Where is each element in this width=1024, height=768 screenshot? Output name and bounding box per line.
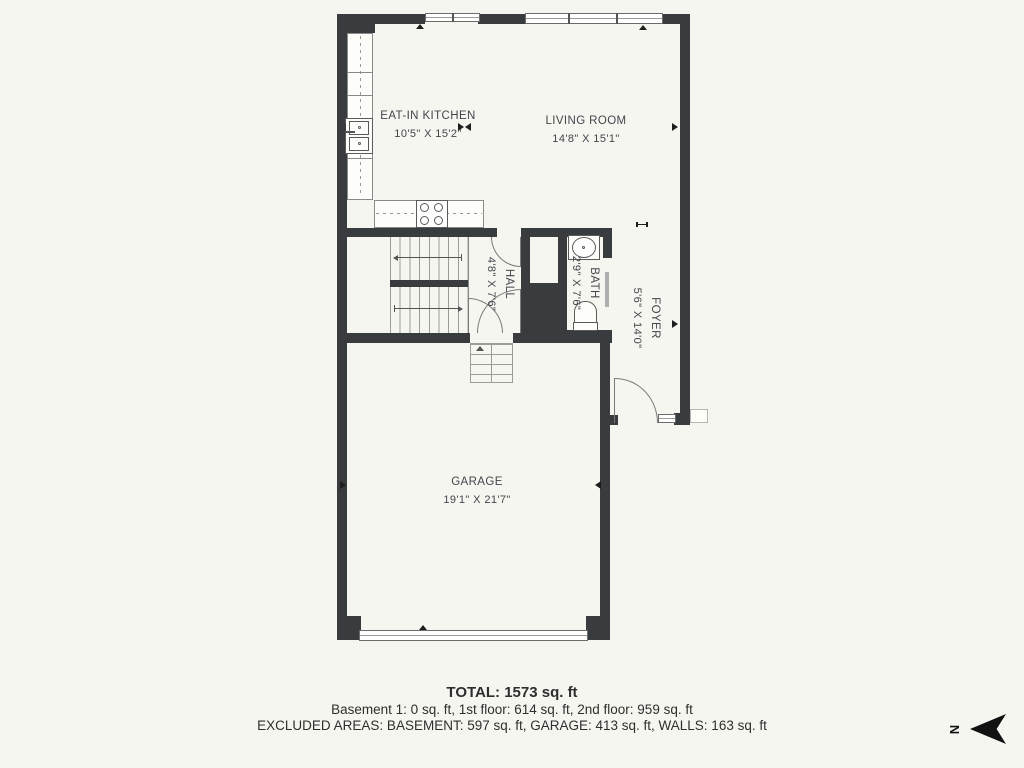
- hall-bottom-door-leaf: [520, 289, 521, 333]
- counter-divider: [348, 95, 372, 96]
- marker-opening: [636, 222, 648, 227]
- bath-sliding-door-leaf: [605, 272, 609, 307]
- room-label-garage: GARAGE 19'1" X 21'7": [443, 474, 510, 508]
- room-name: GARAGE: [443, 474, 510, 490]
- entry-sidelight-window: [658, 414, 676, 423]
- front-door-arc: [615, 378, 658, 423]
- floor-areas-text: Basement 1: 0 sq. ft, 1st floor: 614 sq.…: [0, 702, 1024, 718]
- north-compass: N: [940, 706, 1010, 751]
- wall: [680, 14, 690, 423]
- room-label-kitchen: EAT-IN KITCHEN 10'5" X 15'2": [380, 108, 475, 142]
- marker-tick: [595, 481, 601, 489]
- room-name: EAT-IN KITCHEN: [380, 108, 475, 124]
- window-mullion: [616, 13, 618, 24]
- room-name: LIVING ROOM: [545, 113, 626, 129]
- stairs-upper-flight: [390, 237, 468, 280]
- stair-arrow-tick: [394, 305, 395, 312]
- north-arrow-icon: [970, 714, 1006, 744]
- stove-burner: [420, 203, 429, 212]
- living-room-window: [525, 13, 663, 24]
- stairs-lower-flight: [390, 287, 468, 333]
- wall: [478, 14, 525, 24]
- counter-divider: [348, 158, 372, 159]
- marker-tick: [672, 320, 678, 328]
- stair-direction-line: [398, 257, 462, 258]
- marker-tick: [419, 625, 427, 630]
- window-mullion: [452, 13, 454, 22]
- north-label: N: [947, 725, 962, 734]
- room-name: BATH: [586, 256, 602, 310]
- stove-burner: [434, 203, 443, 212]
- sink-drain: [358, 126, 361, 129]
- stove-burner: [420, 216, 429, 225]
- wall: [674, 413, 690, 425]
- toilet-tank: [573, 322, 598, 331]
- wall: [337, 616, 361, 640]
- area-summary: TOTAL: 1573 sq. ft Basement 1: 0 sq. ft,…: [0, 684, 1024, 734]
- faucet-line: [345, 131, 355, 133]
- room-dims: 10'5" X 15'2": [380, 126, 475, 142]
- room-name: FOYER: [647, 288, 663, 349]
- stove-burner: [434, 216, 443, 225]
- front-door-leaf: [614, 378, 615, 423]
- hall-top-door-leaf: [520, 237, 521, 267]
- wall: [390, 280, 468, 287]
- excluded-areas-text: EXCLUDED AREAS: BASEMENT: 597 sq. ft, GA…: [0, 718, 1024, 734]
- room-dims: 5'6" X 14'0": [629, 288, 645, 349]
- entry-stoop: [690, 409, 708, 423]
- wall: [586, 616, 610, 640]
- room-label-foyer: FOYER 5'6" X 14'0": [629, 288, 663, 349]
- wall: [337, 14, 347, 640]
- marker-tick: [416, 24, 424, 29]
- room-label-hall: HALL 4'8" X 7'6": [483, 257, 517, 311]
- garage-door: [359, 630, 588, 641]
- wall: [337, 228, 497, 237]
- room-dims: 4'8" X 7'6": [483, 257, 499, 311]
- stair-arrow-up: [393, 255, 398, 261]
- room-label-living: LIVING ROOM 14'8" X 15'1": [545, 113, 626, 147]
- wall: [600, 330, 610, 640]
- floorplan-canvas: EAT-IN KITCHEN 10'5" X 15'2" LIVING ROOM…: [0, 0, 1024, 768]
- room-dims: 14'8" X 15'1": [545, 131, 626, 147]
- stair-direction-line: [394, 308, 458, 309]
- wall: [337, 333, 470, 343]
- counter-dash-line: [360, 36, 361, 197]
- steps-center-rail: [491, 343, 492, 383]
- total-area-text: TOTAL: 1573 sq. ft: [0, 684, 1024, 702]
- stair-arrow-down: [458, 306, 463, 312]
- room-name: HALL: [501, 257, 517, 311]
- room-label-bath: BATH 2'9" X 7'6": [568, 256, 602, 310]
- room-dims: 19'1" X 21'7": [443, 492, 510, 508]
- marker-tick: [672, 123, 678, 131]
- wall: [603, 228, 612, 258]
- steps-up-arrow: [476, 346, 484, 351]
- sink-drain: [358, 142, 361, 145]
- garage-stair-door-leaf: [468, 298, 469, 333]
- wall: [521, 237, 530, 287]
- room-dims: 2'9" X 7'6": [568, 256, 584, 310]
- wall: [513, 333, 612, 343]
- window-mullion: [568, 13, 570, 24]
- counter-divider: [348, 72, 372, 73]
- marker-tick: [639, 25, 647, 30]
- stair-arrow-tick: [461, 254, 462, 261]
- bath-sink-drain: [582, 246, 585, 249]
- marker-tick: [340, 481, 346, 489]
